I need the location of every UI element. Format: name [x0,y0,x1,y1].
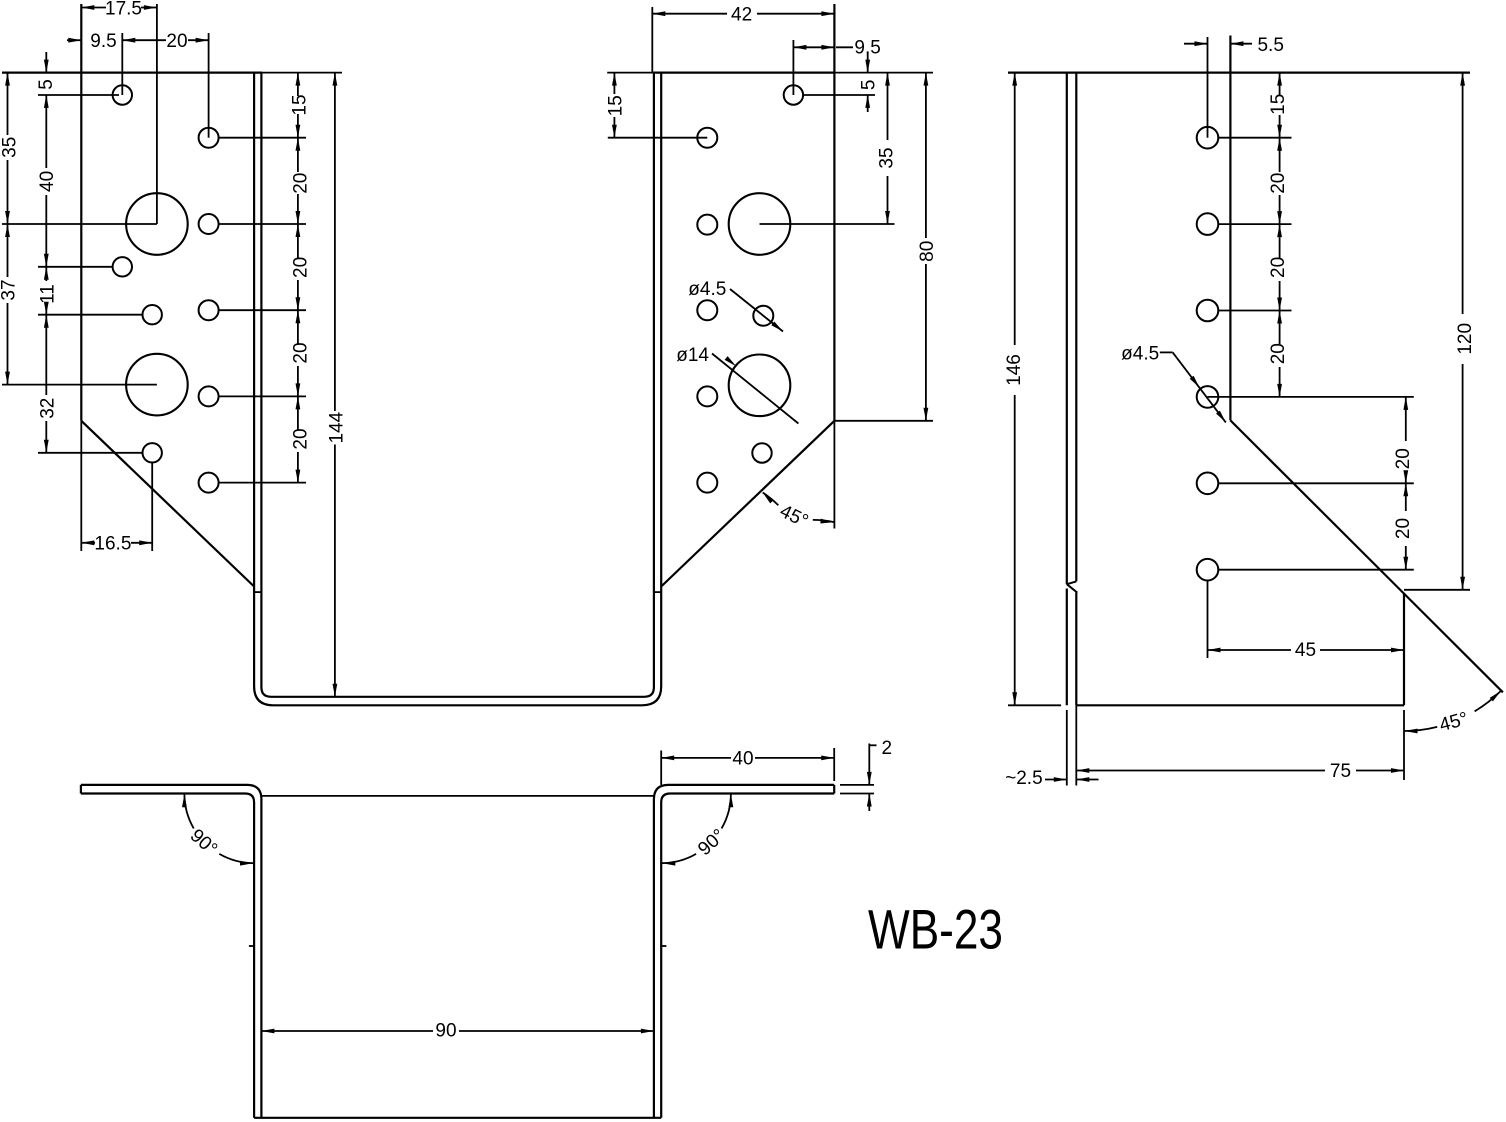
svg-text:45: 45 [1295,640,1316,661]
svg-text:2: 2 [882,738,893,759]
svg-text:20: 20 [290,257,311,278]
svg-text:20: 20 [1393,518,1414,539]
svg-text:5: 5 [858,80,879,91]
svg-text:35: 35 [877,147,898,168]
svg-text:80: 80 [917,241,938,262]
svg-text:20: 20 [290,173,311,194]
svg-text:~2.5: ~2.5 [1005,768,1043,789]
svg-text:37: 37 [0,279,20,300]
svg-text:WB-23: WB-23 [868,898,1003,961]
svg-text:15: 15 [1268,94,1289,115]
svg-text:20: 20 [1268,257,1289,278]
svg-text:16.5: 16.5 [94,534,131,555]
svg-text:90: 90 [435,1021,456,1042]
svg-text:5.5: 5.5 [1257,35,1283,56]
svg-text:144: 144 [326,411,347,443]
svg-text:40: 40 [37,171,58,192]
svg-text:5: 5 [36,79,57,90]
svg-text:20: 20 [166,31,187,52]
svg-text:20: 20 [1393,448,1414,469]
svg-text:ø4.5: ø4.5 [1121,344,1159,365]
svg-text:15: 15 [289,94,310,115]
svg-text:15: 15 [605,95,626,116]
svg-text:32: 32 [37,398,58,419]
svg-text:17.5: 17.5 [105,0,142,20]
svg-text:75: 75 [1330,761,1351,782]
svg-text:11: 11 [37,284,58,304]
svg-text:120: 120 [1455,323,1476,355]
svg-text:20: 20 [1268,343,1289,364]
svg-text:42: 42 [731,5,752,26]
svg-text:ø14: ø14 [676,345,709,366]
svg-text:20: 20 [290,342,311,363]
svg-text:20: 20 [290,428,311,449]
svg-text:ø4.5: ø4.5 [688,279,726,300]
svg-text:20: 20 [1268,173,1289,194]
svg-text:35: 35 [0,137,20,158]
svg-text:146: 146 [1004,354,1025,386]
svg-text:9.5: 9.5 [90,31,116,52]
svg-text:40: 40 [732,749,753,770]
